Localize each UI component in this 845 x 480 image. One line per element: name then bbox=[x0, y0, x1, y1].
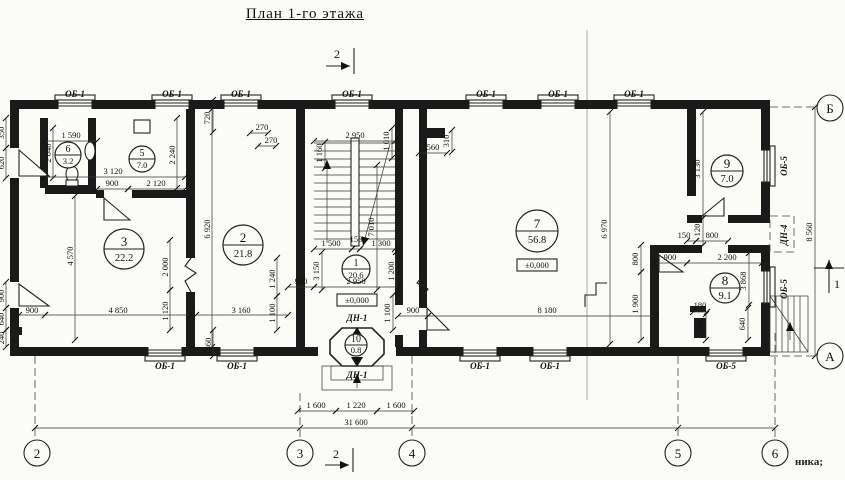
floor-plan-canvas: 2 2 1 2 3 4 5 6 А Б 3 22.2 2 21.8 bbox=[0, 0, 845, 480]
dim-label: 180 bbox=[694, 300, 707, 310]
dim-label: 150 bbox=[678, 230, 691, 240]
dim-label: 8 560 bbox=[804, 222, 814, 241]
dim-label: 3 120 bbox=[103, 166, 122, 176]
door-leaf-room9 bbox=[702, 198, 724, 216]
dim-label: 4 570 bbox=[65, 246, 75, 265]
dim-label: 620 bbox=[0, 157, 6, 170]
dim-label: 8 180 bbox=[537, 305, 556, 315]
room-number: 2 bbox=[240, 230, 247, 245]
room-area: 3.2 bbox=[63, 156, 74, 166]
dim-label: 2 000 bbox=[160, 257, 170, 276]
room-stamp-9: 9 7.0 bbox=[711, 155, 743, 187]
room-stamp-3: 3 22.2 bbox=[104, 229, 144, 269]
section-label: 2 bbox=[334, 47, 340, 61]
level-mark: ±0,000 bbox=[345, 295, 369, 305]
window-mark: ОБ-5 bbox=[779, 156, 789, 176]
dim-label: 2 950 bbox=[346, 276, 365, 286]
axis-label: А bbox=[825, 349, 835, 364]
axis-label: Б bbox=[826, 101, 833, 116]
room-area: 22.2 bbox=[115, 253, 133, 264]
dim-label: 1 900 bbox=[630, 294, 640, 313]
window-mark: ОБ-1 bbox=[155, 361, 175, 371]
dim-label: 7 010 bbox=[366, 217, 376, 236]
room-stamp-8: 8 9.1 bbox=[710, 273, 740, 303]
window-mark: ОБ-5 bbox=[779, 279, 789, 299]
room-stamp-6: 6 3.2 bbox=[55, 142, 81, 168]
room-number: 8 bbox=[722, 273, 729, 288]
dim-label: 1 120 bbox=[160, 301, 170, 320]
room-number: 9 bbox=[724, 156, 731, 171]
dim-label: 1 200 bbox=[386, 261, 396, 280]
dim-label: 1 010 bbox=[381, 131, 391, 150]
dim-label: 800 bbox=[630, 253, 640, 266]
dim-label: 1 160 bbox=[314, 143, 324, 162]
dim-label: 3 150 bbox=[311, 261, 321, 280]
dim-label: 2 120 bbox=[146, 178, 165, 188]
exterior-stair bbox=[770, 296, 808, 352]
dim-label: 350 bbox=[0, 127, 6, 140]
dim-label: 2 040 bbox=[43, 143, 53, 162]
door-leaf-room5 bbox=[104, 198, 130, 220]
window-mark: ОБ-5 bbox=[716, 361, 736, 371]
room-stamp-2: 2 21.8 bbox=[223, 225, 263, 265]
dim-label: 900 bbox=[26, 305, 39, 315]
window-mark: ОБ-1 bbox=[624, 89, 644, 99]
dim-label: 900 bbox=[664, 252, 677, 262]
window-mark: ОБ-1 bbox=[548, 89, 568, 99]
room-number: 6 bbox=[66, 144, 71, 155]
dim-label: 900 bbox=[0, 290, 6, 303]
section-label: 2 bbox=[333, 447, 339, 461]
dim-label: 1 100 bbox=[267, 303, 277, 322]
window-mark: ОБ-1 bbox=[65, 89, 85, 99]
dim-label: 6 920 bbox=[202, 219, 212, 238]
dim-label: 3 130 bbox=[692, 159, 702, 178]
axis-label: 4 bbox=[409, 446, 416, 461]
stair-stringer bbox=[351, 138, 359, 246]
window-mark: ОБ-1 bbox=[470, 361, 490, 371]
room-number: 10 bbox=[351, 334, 361, 345]
door-leaf-lobby-room7 bbox=[427, 308, 449, 330]
room-stamp-10: 10 0.8 bbox=[345, 334, 367, 356]
dim-label: 120 bbox=[692, 224, 702, 237]
window-mark: ОБ-1 bbox=[227, 361, 247, 371]
dim-label: 1 100 bbox=[382, 303, 392, 322]
dim-label: 270 bbox=[265, 135, 278, 145]
dim-label: 800 bbox=[706, 230, 719, 240]
dim-label: 900 bbox=[407, 305, 420, 315]
dim-label: 1 590 bbox=[61, 130, 80, 140]
axis-label: 6 bbox=[772, 446, 779, 461]
dim-label: 1 240 bbox=[267, 269, 277, 288]
wall-break-symbol bbox=[185, 258, 196, 292]
room-number: 5 bbox=[140, 148, 145, 159]
dim-label: 640 bbox=[0, 313, 6, 326]
dim-label: 31 600 bbox=[344, 417, 367, 427]
window-mark: ОБ-1 bbox=[476, 89, 496, 99]
dim-label: 1 600 bbox=[306, 400, 325, 410]
dim-label: 720 bbox=[202, 112, 212, 125]
room-area: 7.0 bbox=[720, 174, 733, 185]
room-area: 7.0 bbox=[137, 160, 148, 170]
floor-plan-sheet: План 1-го этажа ника; bbox=[0, 0, 845, 480]
level-mark: ±0,000 bbox=[525, 260, 549, 270]
room-number: 7 bbox=[534, 216, 541, 231]
dim-label: 1 220 bbox=[346, 400, 365, 410]
dim-label: 860 bbox=[203, 338, 213, 351]
dim-label: 3 160 bbox=[231, 305, 250, 315]
dim-label: 6 970 bbox=[599, 219, 609, 238]
section-label: 1 bbox=[834, 277, 840, 291]
dim-label: 2 240 bbox=[167, 145, 177, 164]
dim-label: 900 bbox=[295, 276, 308, 286]
dim-label: 560 bbox=[695, 320, 705, 333]
dim-label: 2 950 bbox=[345, 130, 364, 140]
room-area: 0.8 bbox=[351, 345, 362, 355]
door-mark: ДН-4 bbox=[779, 224, 789, 246]
window-mark: ОБ-1 bbox=[342, 89, 362, 99]
axis-label: 2 bbox=[34, 446, 41, 461]
sink-icon bbox=[85, 142, 95, 160]
door-mark: ДН-1 bbox=[346, 313, 368, 323]
dim-label: 560 bbox=[427, 142, 440, 152]
axis-label: 5 bbox=[675, 446, 682, 461]
fixtures bbox=[66, 120, 428, 296]
dim-label: 640 bbox=[737, 318, 747, 331]
room-stamp-5: 5 7.0 bbox=[129, 146, 155, 172]
room-stamp-7: 7 56.8 bbox=[516, 210, 558, 252]
axis-label: 3 bbox=[297, 446, 304, 461]
dim-label: 900 bbox=[106, 178, 119, 188]
dim-label: 1 300 bbox=[371, 238, 390, 248]
dim-label: 270 bbox=[256, 122, 269, 132]
window-mark: ОБ-1 bbox=[162, 89, 182, 99]
dim-label: 4 850 bbox=[108, 305, 127, 315]
room-area: 21.8 bbox=[234, 249, 252, 260]
window-mark: ОБ-1 bbox=[540, 361, 560, 371]
dim-label: 1 600 bbox=[386, 400, 405, 410]
door-mark: ДН-1 bbox=[346, 370, 368, 380]
door-leaf-left-bottom bbox=[19, 284, 49, 306]
dim-label: 150 bbox=[350, 234, 363, 244]
dim-label: 240 bbox=[0, 332, 6, 345]
dim-label: 310 bbox=[441, 135, 451, 148]
window-mark: ОБ-1 bbox=[231, 89, 251, 99]
dim-label: 3 868 bbox=[738, 271, 748, 290]
window-right bbox=[761, 146, 775, 307]
wall-pier bbox=[13, 327, 22, 335]
room-area: 56.8 bbox=[528, 235, 546, 246]
vent-shaft bbox=[134, 120, 150, 133]
room-number: 1 bbox=[354, 258, 359, 269]
floor-step-symbol bbox=[585, 283, 607, 307]
dim-label: 1 500 bbox=[321, 238, 340, 248]
room-number: 3 bbox=[121, 234, 128, 249]
room-area: 9.1 bbox=[718, 291, 731, 302]
dim-label: 2 200 bbox=[717, 252, 736, 262]
